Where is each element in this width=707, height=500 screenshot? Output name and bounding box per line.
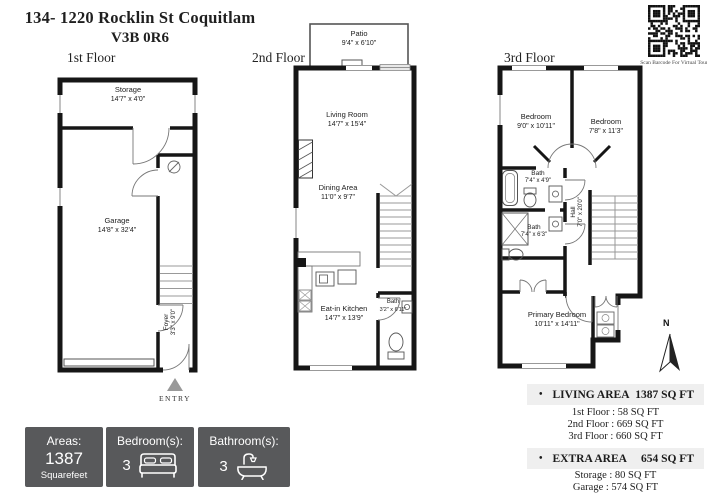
living-breakdown-line: 1st Floor : 58 SQ FT — [527, 407, 704, 418]
room-label-storage: Storage 14'7" x 4'0" — [111, 85, 146, 104]
bathrooms-label: Bathroom(s): — [198, 434, 290, 448]
bathtub-icon — [235, 452, 269, 480]
room-dims: 14'8" x 32'4" — [98, 226, 136, 235]
room-name: Storage — [111, 85, 146, 95]
entry-arrow-icon — [167, 378, 183, 391]
qr-code-svg — [648, 5, 700, 57]
room-label-bedroom-left: Bedroom 9'0" x 10'11" — [517, 112, 555, 131]
room-label-hall: Hall 7'0" x 20'0" — [570, 197, 586, 227]
room-name: Bedroom — [517, 112, 555, 122]
bed-icon — [138, 452, 178, 478]
room-label-dining-area: Dining Area 11'0" x 9'7" — [319, 183, 358, 202]
room-dims: 3'2" x 6'11" — [380, 307, 407, 314]
room-name: Bath — [521, 224, 547, 232]
room-label-bath-2nd: Bath 3'2" x 6'11" — [380, 299, 407, 314]
extra-area-value: 654 SQ FT — [641, 453, 694, 465]
living-area-label: LIVING AREA — [553, 389, 630, 401]
living-area-band: • LIVING AREA 1387 SQ FT — [527, 384, 704, 405]
room-dims: 7'4" x 4'9" — [525, 178, 551, 186]
room-name: Bath — [380, 299, 407, 307]
room-dims: 14'7" x 13'9" — [321, 314, 368, 323]
room-name: Eat-in Kitchen — [321, 304, 368, 314]
room-dims: 7'8" x 11'3" — [589, 127, 623, 136]
entry-label: ENTRY — [159, 394, 191, 403]
living-breakdown-line: 3rd Floor : 660 SQ FT — [527, 431, 704, 442]
room-label-bath-top: Bath 7'4" x 4'9" — [525, 170, 551, 186]
room-dims: 7'4" x 6'3" — [521, 232, 547, 240]
room-label-kitchen: Eat-in Kitchen 14'7" x 13'9" — [321, 304, 368, 323]
room-name: Patio — [342, 29, 377, 39]
room-dims: 9'4" x 6'10" — [342, 39, 377, 48]
extra-area-band: • EXTRA AREA 654 SQ FT — [527, 448, 704, 469]
qr-code — [648, 5, 700, 57]
room-name: Bedroom — [589, 117, 623, 127]
room-label-living-room: Living Room 14'7" x 15'4" — [326, 110, 368, 129]
room-label-patio: Patio 9'4" x 6'10" — [342, 29, 377, 48]
areas-value: 1387 — [25, 449, 103, 469]
room-label-bath-mid: Bath 7'4" x 6'3" — [521, 224, 547, 240]
room-dims: 14'7" x 15'4" — [326, 120, 368, 129]
living-breakdown-line: 2nd Floor : 669 SQ FT — [527, 419, 704, 430]
areas-unit: Squarefeet — [25, 470, 103, 481]
room-label-primary-bedroom: Primary Bedroom 10'11" x 14'11" — [528, 310, 586, 329]
room-name: Foyer — [163, 309, 171, 335]
bedrooms-count: 3 — [122, 457, 130, 474]
room-label-garage: Garage 14'8" x 32'4" — [98, 216, 136, 235]
room-dims: 9'0" x 10'11" — [517, 122, 555, 131]
room-dims: 3'3" x 9'0" — [171, 309, 179, 335]
bullet: • — [539, 389, 543, 400]
room-dims: 14'7" x 4'0" — [111, 95, 146, 104]
room-dims: 11'0" x 9'7" — [319, 193, 358, 202]
bedrooms-label: Bedroom(s): — [106, 434, 194, 448]
north-arrow-icon — [660, 334, 680, 371]
areas-label: Areas: — [25, 434, 103, 448]
bathrooms-count: 3 — [219, 458, 227, 475]
bedrooms-badge: Bedroom(s): 3 — [106, 427, 194, 487]
room-name: Hall — [570, 197, 578, 227]
room-name: Dining Area — [319, 183, 358, 193]
extra-area-label: EXTRA AREA — [553, 453, 627, 465]
first-floor-plan — [60, 80, 195, 391]
areas-badge: Areas: 1387 Squarefeet — [25, 427, 103, 487]
room-label-bedroom-right: Bedroom 7'8" x 11'3" — [589, 117, 623, 136]
extra-breakdown-line: Garage : 574 SQ FT — [527, 482, 704, 493]
bathrooms-badge: Bathroom(s): 3 — [198, 427, 290, 487]
room-label-foyer: Foyer 3'3" x 9'0" — [163, 309, 179, 335]
extra-breakdown-line: Storage : 80 SQ FT — [527, 470, 704, 481]
room-name: Primary Bedroom — [528, 310, 586, 320]
north-label: N — [663, 318, 670, 328]
floorplan-page: 134- 1220 Rocklin St Coquitlam V3B 0R6 1… — [0, 0, 707, 500]
living-area-value: 1387 SQ FT — [635, 389, 694, 401]
room-dims: 7'0" x 20'0" — [578, 197, 586, 227]
room-name: Garage — [98, 216, 136, 226]
room-dims: 10'11" x 14'11" — [528, 320, 586, 329]
room-name: Bath — [525, 170, 551, 178]
bullet: • — [539, 453, 543, 464]
room-name: Living Room — [326, 110, 368, 120]
qr-caption: Scan Barcode For Virtual Tour — [636, 59, 707, 67]
